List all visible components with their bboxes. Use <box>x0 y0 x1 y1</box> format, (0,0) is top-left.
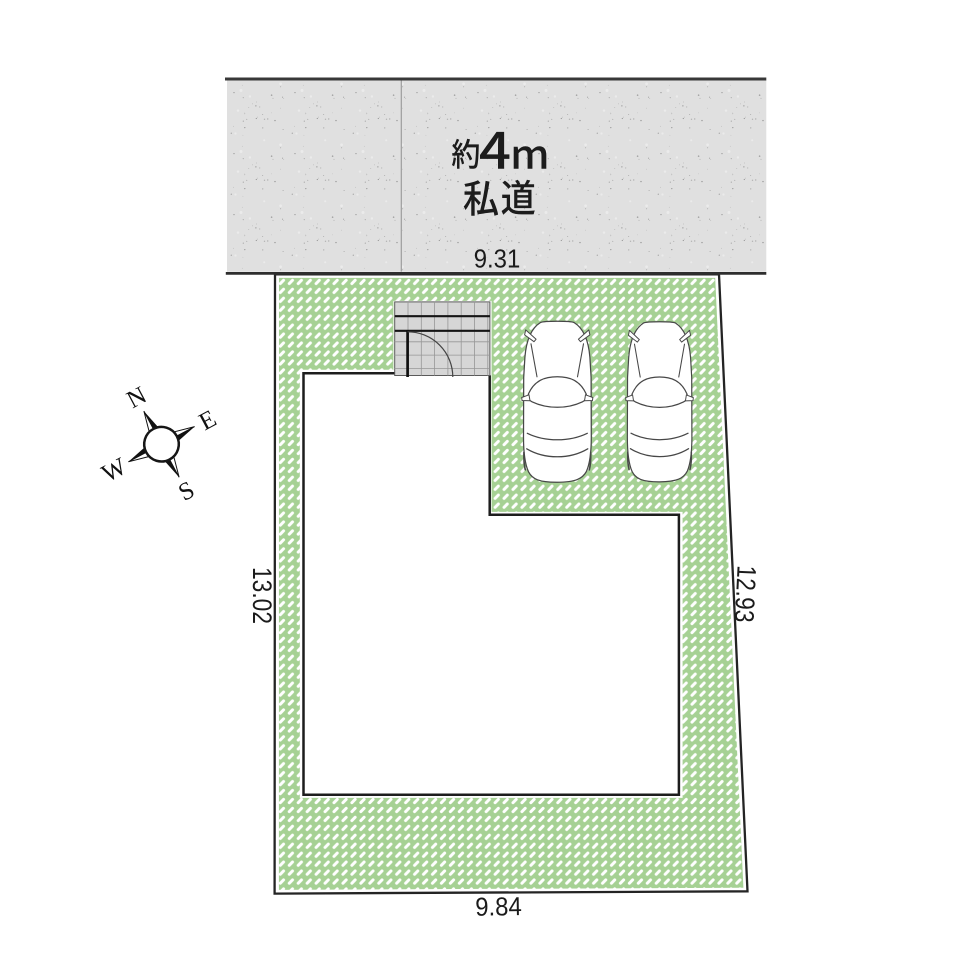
svg-text:9.84: 9.84 <box>475 892 522 922</box>
svg-text:13.02: 13.02 <box>247 567 277 624</box>
svg-text:9.31: 9.31 <box>474 245 521 274</box>
svg-text:12.93: 12.93 <box>728 565 761 623</box>
